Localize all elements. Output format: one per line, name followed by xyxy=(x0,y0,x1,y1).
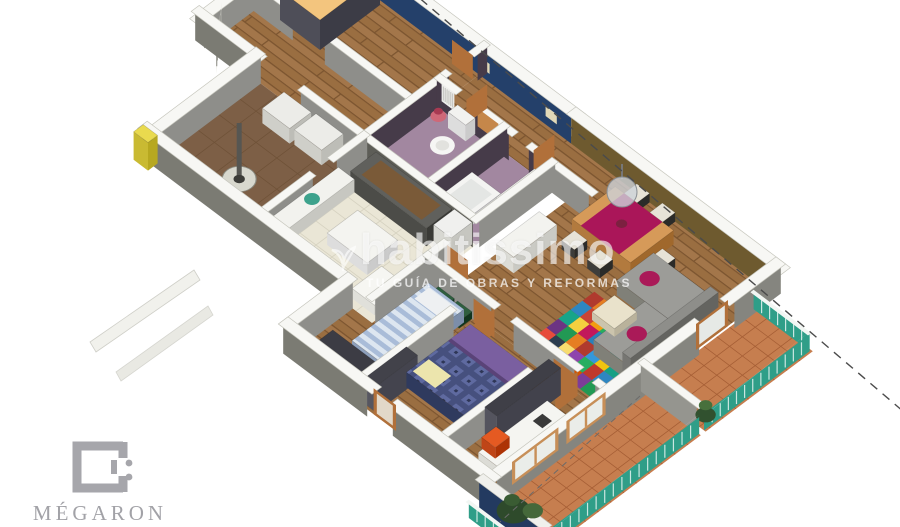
floorplan-screenshot: habitissimo TU GUÍA DE OBRAS Y REFORMAS … xyxy=(0,0,900,527)
brand-logo: MÉGARON INTERIORES xyxy=(10,436,190,527)
brand-name: MÉGARON xyxy=(10,501,190,526)
brand-logo-icon xyxy=(67,436,133,494)
